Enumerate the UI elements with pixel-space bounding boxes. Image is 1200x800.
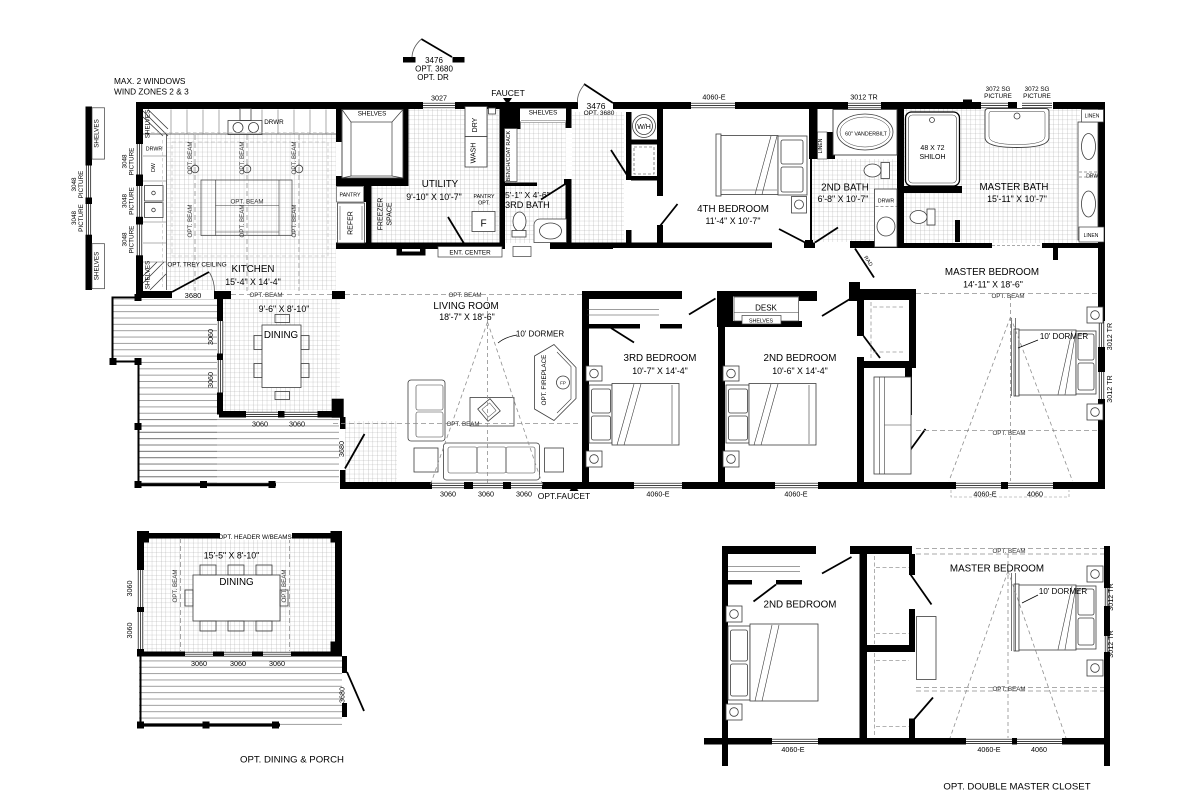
svg-text:MASTER BEDROOM: MASTER BEDROOM (950, 564, 1044, 575)
svg-text:9'-6" X 8'-10": 9'-6" X 8'-10" (259, 304, 310, 314)
svg-text:3060: 3060 (516, 490, 532, 499)
svg-text:SHELVES: SHELVES (94, 252, 101, 281)
svg-text:3RD BEDROOM: 3RD BEDROOM (624, 353, 697, 364)
svg-text:4060-E: 4060-E (784, 490, 807, 499)
svg-text:OPT. BEAM: OPT. BEAM (291, 204, 298, 237)
svg-text:DINING: DINING (219, 577, 253, 588)
svg-text:5'-1" X 4'-6": 5'-1" X 4'-6" (505, 190, 550, 200)
svg-text:F: F (480, 219, 486, 230)
svg-text:3012 TR: 3012 TR (1105, 323, 1114, 350)
svg-text:OPT.: OPT. (478, 201, 490, 207)
svg-text:3012 TR: 3012 TR (850, 93, 877, 102)
svg-text:3060: 3060 (289, 420, 305, 429)
svg-text:3060: 3060 (478, 490, 494, 499)
svg-text:OPT. DINING & PORCH: OPT. DINING & PORCH (240, 755, 344, 766)
svg-text:DRWR: DRWR (1086, 174, 1102, 180)
svg-text:3048: 3048 (122, 154, 129, 169)
svg-text:OPT. BEAM: OPT. BEAM (187, 204, 194, 237)
svg-text:OPT. BEAM: OPT. BEAM (239, 204, 246, 237)
svg-text:3072 SG: 3072 SG (1025, 86, 1050, 93)
svg-text:PICTURE: PICTURE (129, 187, 136, 215)
svg-text:3012 TR: 3012 TR (1105, 375, 1114, 402)
svg-text:4060-E: 4060-E (646, 490, 669, 499)
svg-text:3060: 3060 (230, 659, 246, 668)
svg-text:OPT. BEAM: OPT. BEAM (249, 292, 282, 299)
svg-text:4060-E: 4060-E (973, 490, 996, 499)
svg-text:3027: 3027 (431, 94, 447, 103)
svg-text:4060-E: 4060-E (977, 745, 1000, 754)
svg-text:DESK: DESK (755, 304, 777, 313)
svg-text:4060-E: 4060-E (702, 93, 725, 102)
svg-text:10' DORMER: 10' DORMER (1039, 587, 1087, 596)
svg-text:4060-E: 4060-E (781, 745, 804, 754)
svg-text:MASTER BEDROOM: MASTER BEDROOM (945, 267, 1039, 278)
svg-text:OPT. BEAM: OPT. BEAM (172, 569, 179, 602)
svg-text:OPT. BEAM: OPT. BEAM (239, 141, 246, 174)
svg-text:REFER: REFER (348, 211, 355, 235)
svg-text:4060: 4060 (1031, 745, 1047, 754)
svg-text:15'-11" X 10'-7": 15'-11" X 10'-7" (987, 194, 1047, 204)
svg-text:SHELVES: SHELVES (749, 319, 774, 325)
svg-text:OPT.FAUCET: OPT.FAUCET (538, 491, 590, 501)
svg-text:3048: 3048 (122, 232, 129, 247)
svg-text:FP: FP (560, 381, 566, 386)
svg-text:PICTURE: PICTURE (78, 204, 85, 232)
svg-text:3060: 3060 (125, 581, 134, 597)
svg-text:OPT. BEAM: OPT. BEAM (187, 141, 194, 174)
svg-text:DRWR: DRWR (146, 147, 163, 153)
svg-text:DRWR: DRWR (264, 119, 284, 126)
svg-text:PICTURE: PICTURE (984, 93, 1012, 100)
svg-text:3060: 3060 (125, 623, 134, 639)
svg-text:BENCH/COAT RACK: BENCH/COAT RACK (506, 130, 512, 181)
svg-text:SHELVES: SHELVES (145, 110, 152, 139)
svg-text:OPT. BEAM: OPT. BEAM (291, 141, 298, 174)
svg-text:18'-7" X 18'-6": 18'-7" X 18'-6" (439, 312, 495, 322)
svg-text:15'-5" X 8'-10": 15'-5" X 8'-10" (204, 551, 260, 561)
svg-text:3060: 3060 (440, 490, 456, 499)
svg-text:60" VANDERBILT: 60" VANDERBILT (845, 132, 887, 138)
svg-text:W/H: W/H (637, 124, 651, 131)
svg-text:PICTURE: PICTURE (1023, 93, 1051, 100)
svg-text:SHELVES: SHELVES (529, 110, 558, 117)
svg-text:3048: 3048 (71, 211, 78, 226)
svg-text:10' DORMER: 10' DORMER (1040, 332, 1088, 341)
svg-text:PANTRY: PANTRY (340, 193, 361, 199)
svg-text:OPT. BEAM: OPT. BEAM (991, 293, 1024, 300)
svg-text:DW: DW (151, 163, 157, 172)
svg-text:11'-4" X 10'-7": 11'-4" X 10'-7" (706, 216, 761, 226)
svg-text:UTILITY: UTILITY (422, 179, 459, 190)
svg-text:10'-6" X 14'-4": 10'-6" X 14'-4" (772, 366, 828, 376)
svg-text:14'-11" X 18'-6": 14'-11" X 18'-6" (963, 280, 1023, 290)
svg-text:3060: 3060 (252, 420, 268, 429)
svg-text:3072 SG: 3072 SG (986, 86, 1011, 93)
svg-text:DRY: DRY (472, 117, 479, 132)
svg-text:SHELVES: SHELVES (358, 111, 387, 118)
svg-text:SPACE: SPACE (387, 202, 394, 226)
svg-text:15'-4" X 14'-4": 15'-4" X 14'-4" (225, 277, 281, 287)
svg-text:FREEZER: FREEZER (378, 198, 385, 231)
svg-text:OPT. FIREPLACE: OPT. FIREPLACE (541, 355, 548, 406)
svg-text:3012 TR: 3012 TR (1106, 630, 1115, 657)
svg-text:2ND BEDROOM: 2ND BEDROOM (764, 600, 837, 611)
svg-text:WASH: WASH (471, 143, 478, 164)
svg-text:OPT. BEAM: OPT. BEAM (448, 292, 481, 299)
svg-text:3048: 3048 (122, 194, 129, 209)
svg-text:3060: 3060 (191, 659, 207, 668)
svg-text:FAUCET: FAUCET (491, 88, 525, 98)
svg-text:3680: 3680 (185, 291, 202, 300)
svg-text:10' DORMER: 10' DORMER (516, 330, 564, 339)
svg-text:OPT. TREY CEILING: OPT. TREY CEILING (167, 262, 226, 269)
svg-text:3012 TR: 3012 TR (1106, 583, 1115, 610)
svg-text:LIVING ROOM: LIVING ROOM (433, 301, 498, 312)
svg-text:3680: 3680 (338, 687, 347, 703)
svg-text:MASTER BATH: MASTER BATH (980, 182, 1049, 193)
svg-text:OPT. BEAM: OPT. BEAM (446, 421, 479, 428)
svg-text:OPT. 3680: OPT. 3680 (584, 110, 615, 117)
svg-text:PICTURE: PICTURE (78, 171, 85, 199)
svg-text:3060: 3060 (269, 659, 285, 668)
svg-text:SHILOH: SHILOH (919, 154, 945, 161)
svg-text:3048: 3048 (71, 177, 78, 192)
svg-text:DINING: DINING (264, 330, 298, 341)
svg-text:OPT. BEAM: OPT. BEAM (992, 430, 1025, 437)
svg-text:10'-7" X 14'-4": 10'-7" X 14'-4" (632, 366, 688, 376)
svg-text:PANTRY: PANTRY (474, 194, 495, 200)
svg-text:OPT. BEAM: OPT. BEAM (281, 569, 288, 602)
svg-text:3060: 3060 (206, 372, 215, 388)
svg-text:OPT. DOUBLE MASTER CLOSET: OPT. DOUBLE MASTER CLOSET (943, 782, 1090, 793)
svg-text:WIND ZONES 2 & 3: WIND ZONES 2 & 3 (114, 87, 189, 97)
svg-text:MAX. 2 WINDOWS: MAX. 2 WINDOWS (114, 76, 186, 86)
svg-text:PICTURE: PICTURE (129, 148, 136, 176)
svg-text:3680: 3680 (337, 441, 346, 457)
svg-text:48 X 72: 48 X 72 (920, 145, 944, 152)
svg-text:PICTURE: PICTURE (129, 226, 136, 254)
svg-text:3RD BATH: 3RD BATH (505, 200, 550, 210)
svg-text:LINEN: LINEN (1085, 114, 1100, 120)
svg-text:2ND BEDROOM: 2ND BEDROOM (764, 353, 837, 364)
svg-text:ENT. CENTER: ENT. CENTER (449, 250, 491, 257)
svg-text:4TH BEDROOM: 4TH BEDROOM (697, 204, 769, 215)
svg-text:LINEN: LINEN (818, 138, 824, 153)
svg-text:OPT. BEAM: OPT. BEAM (992, 686, 1025, 693)
svg-text:SHELVES: SHELVES (94, 119, 101, 148)
svg-text:3060: 3060 (206, 329, 215, 345)
svg-text:SHELVES: SHELVES (145, 261, 152, 290)
svg-text:4060: 4060 (1027, 490, 1043, 499)
svg-text:OPT. BEAM: OPT. BEAM (992, 548, 1025, 555)
svg-text:2ND BATH: 2ND BATH (821, 183, 869, 194)
svg-text:OPT. DR: OPT. DR (417, 73, 449, 82)
svg-text:OPT. HEADER W/BEAMS: OPT. HEADER W/BEAMS (218, 534, 291, 541)
svg-text:LINEN: LINEN (1084, 233, 1099, 239)
svg-text:6'-8" X 10'-7": 6'-8" X 10'-7" (818, 194, 869, 204)
svg-text:KITCHEN: KITCHEN (231, 264, 274, 275)
svg-text:OPT. BEAM: OPT. BEAM (230, 199, 263, 206)
svg-text:DRWR: DRWR (878, 199, 895, 205)
svg-text:9'-10" X 10'-7": 9'-10" X 10'-7" (406, 192, 462, 202)
